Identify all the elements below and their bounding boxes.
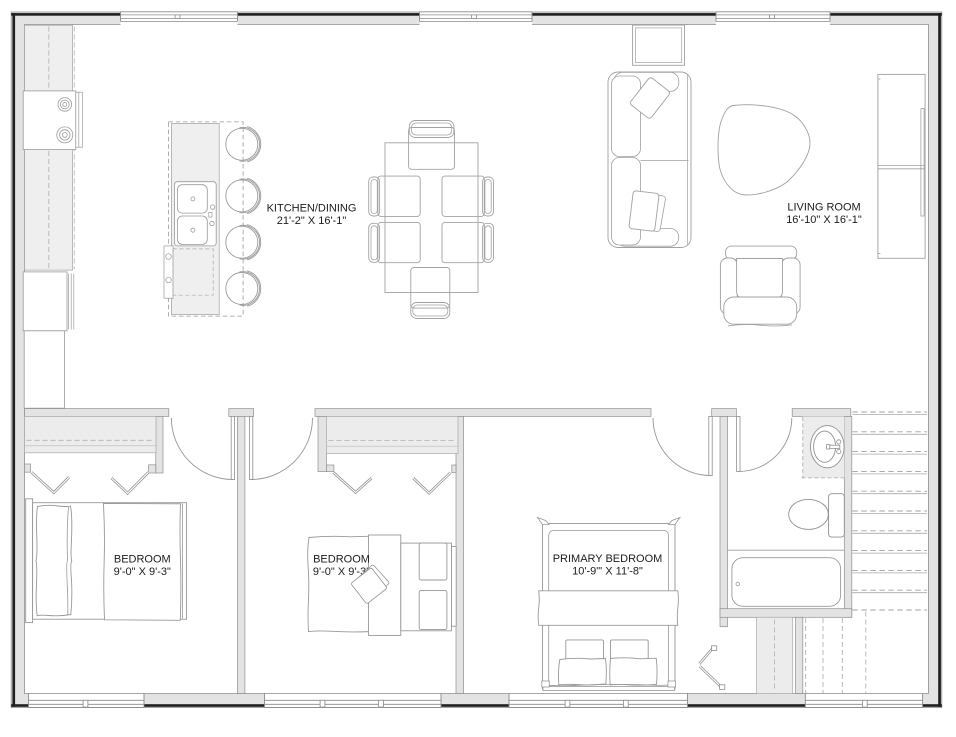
svg-text:LIVING ROOM: LIVING ROOM [787,201,860,213]
svg-text:KITCHEN/DINING: KITCHEN/DINING [267,203,357,215]
svg-text:BEDROOM: BEDROOM [114,553,171,565]
svg-text:BEDROOM: BEDROOM [313,553,370,565]
svg-text:9'-0" X 9'-3": 9'-0" X 9'-3" [114,566,171,578]
svg-text:10'-9"' X 11'-8": 10'-9"' X 11'-8" [572,566,643,578]
svg-text:PRIMARY BEDROOM: PRIMARY BEDROOM [553,553,663,565]
svg-text:16'-10" X 16'-1": 16'-10" X 16'-1" [786,214,862,226]
svg-text:21'-2" X 16'-1": 21'-2" X 16'-1" [277,215,347,227]
